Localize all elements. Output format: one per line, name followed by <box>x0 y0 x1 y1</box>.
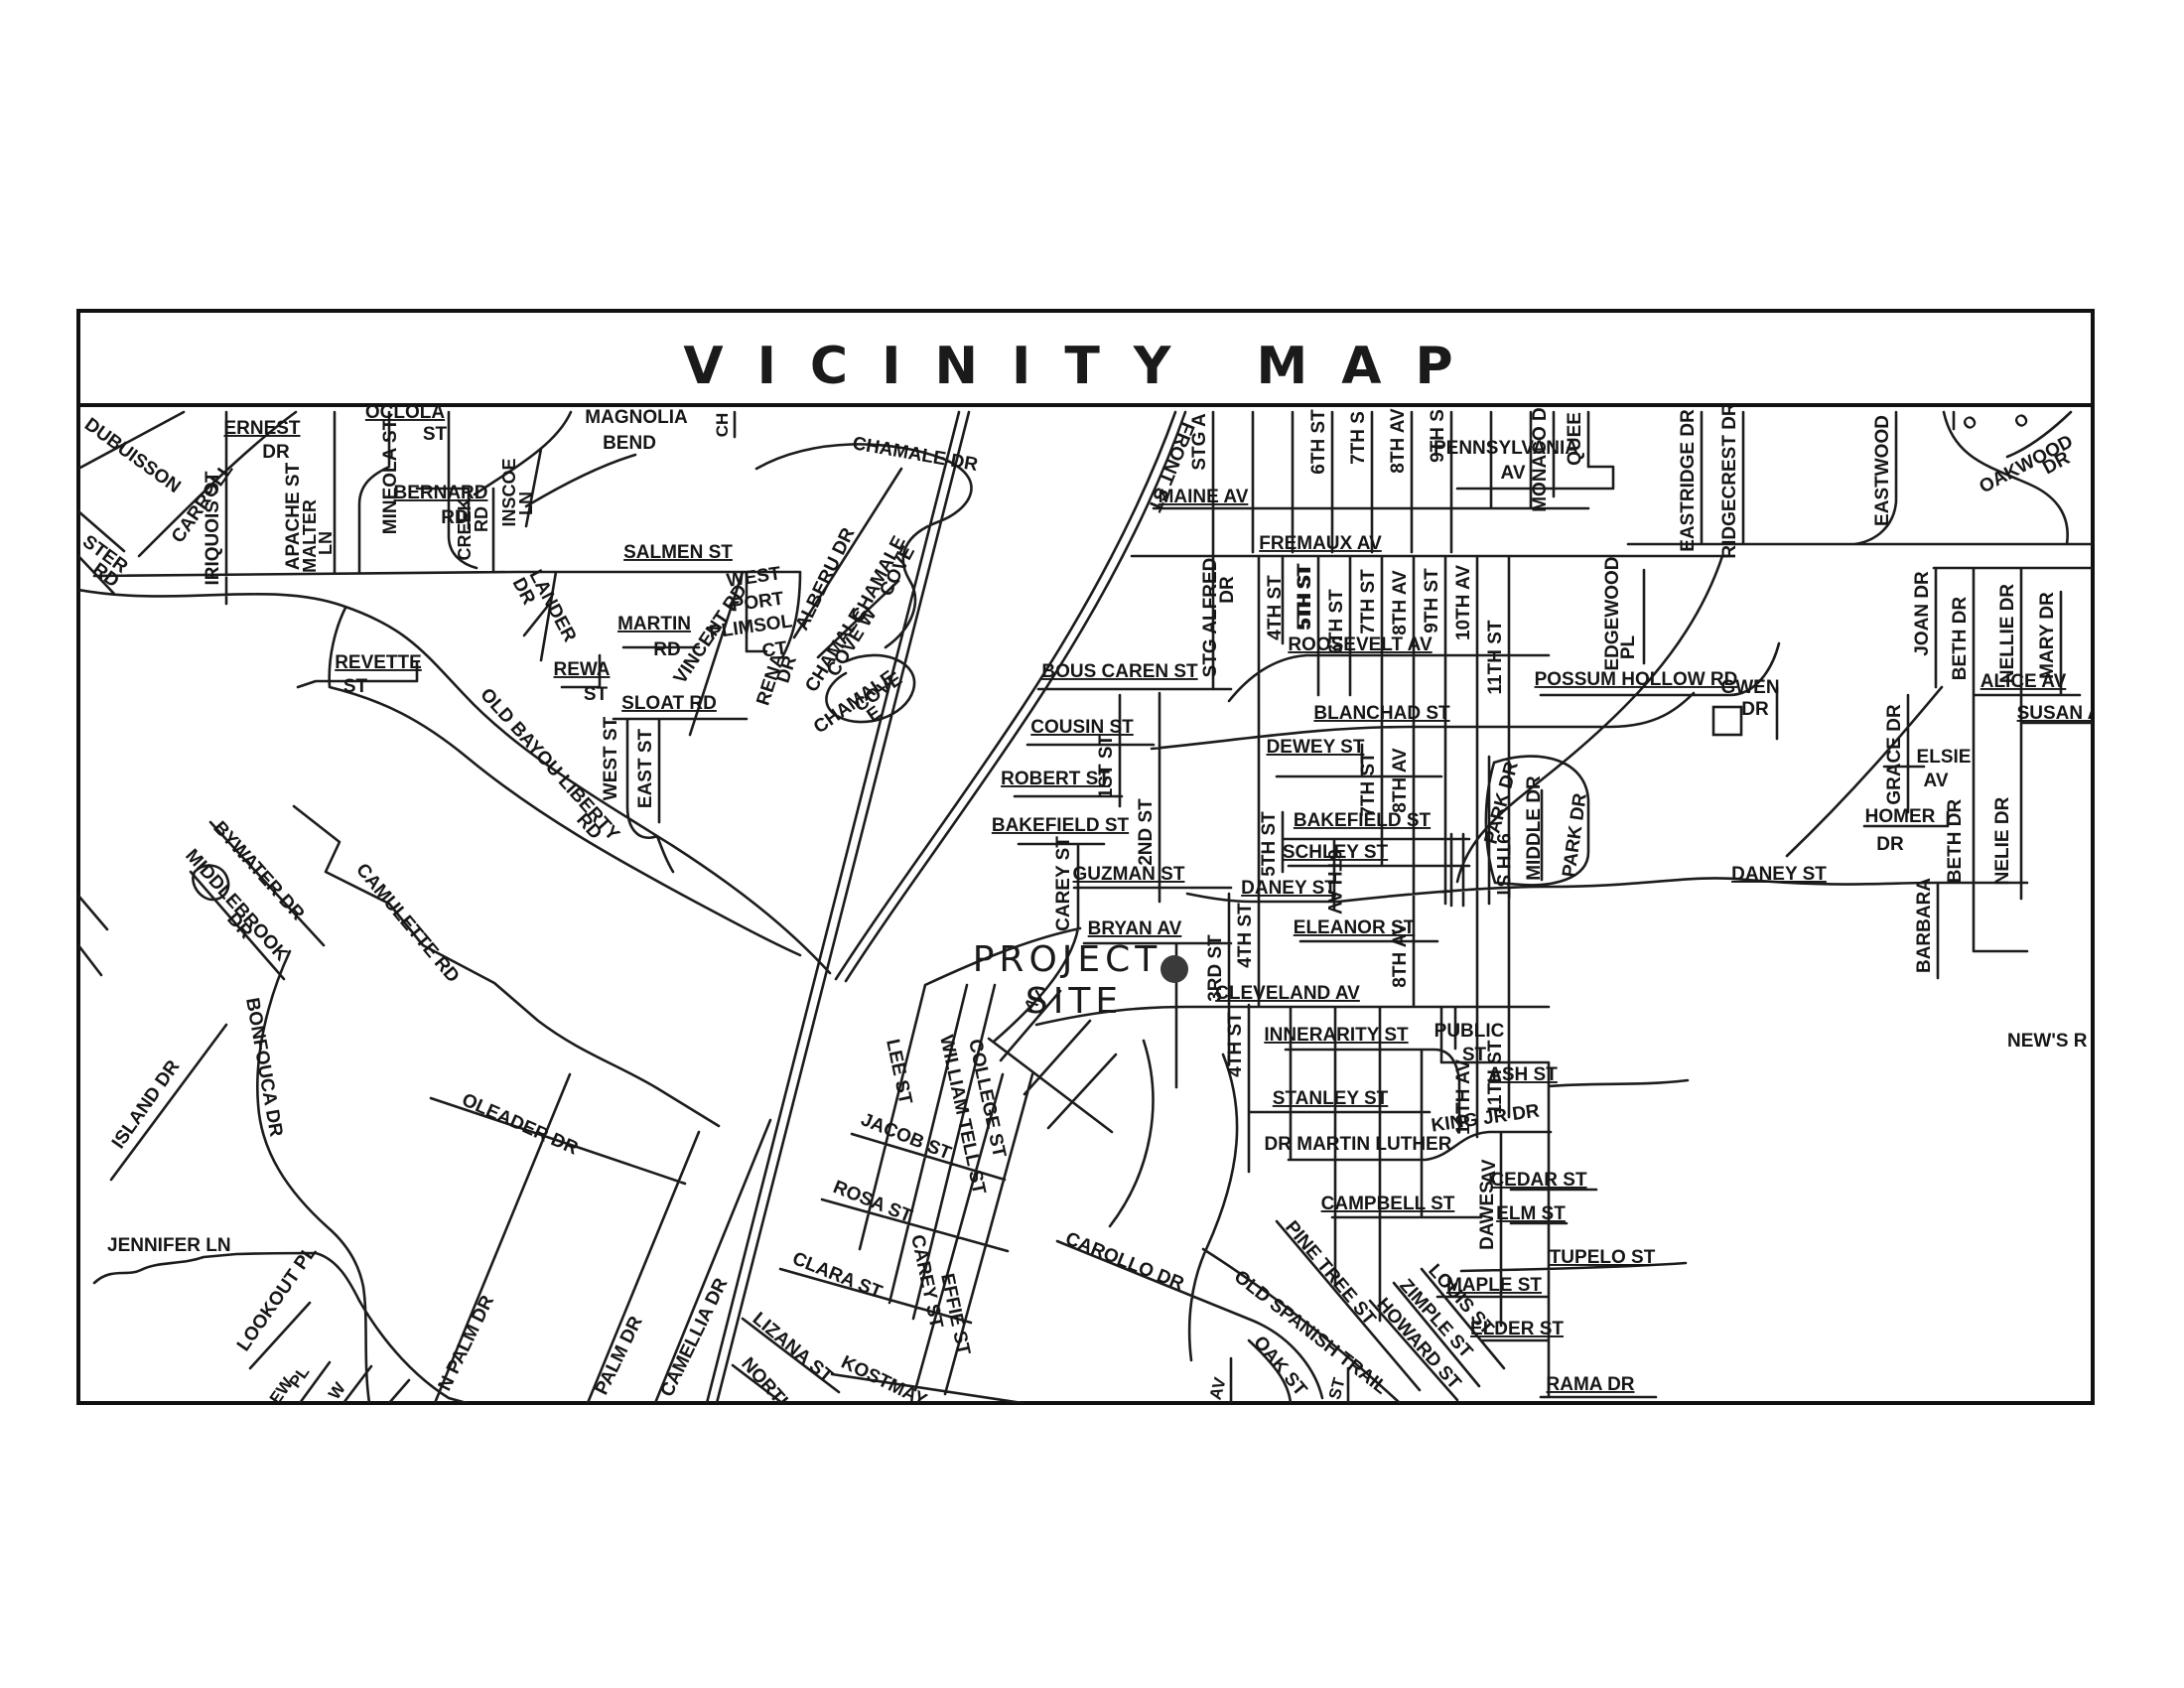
street-label: PENNSYLVANIA <box>1433 438 1578 459</box>
street-label: 4TH ST <box>1225 1012 1246 1077</box>
street-label: MAINE AV <box>1159 487 1249 507</box>
street-label: PUBLIC <box>1434 1021 1505 1042</box>
street-label: 8TH AV <box>1390 748 1411 813</box>
street-label: OLEADER DR <box>459 1089 582 1159</box>
street-label: CAREY ST <box>1053 836 1074 931</box>
street-label: RD <box>653 639 680 660</box>
street-label: 8TH AV <box>1390 922 1411 988</box>
map-canvas: VICINITY MAP PROJECT SITE DUBUISSONCARRO… <box>0 0 2184 1688</box>
vicinity-map-page: VICINITY MAP PROJECT SITE DUBUISSONCARRO… <box>0 0 2184 1688</box>
street-label: STG A <box>1189 413 1210 471</box>
street-label: DANEY ST <box>1731 864 1827 885</box>
street-label: INNERARITY ST <box>1264 1025 1409 1046</box>
street-label: STANLEY ST <box>1273 1088 1389 1109</box>
street-label: NELLIE DR <box>1997 584 2018 684</box>
street-label: 6TH ST <box>1308 409 1329 475</box>
street-label: ASH ST <box>1488 1064 1558 1085</box>
street-label: MAGNOLIA <box>585 407 688 428</box>
street-label: ERNEST <box>223 418 300 439</box>
street-label: ST <box>1325 1375 1349 1401</box>
street-label: DANEY ST <box>1241 878 1336 899</box>
street-label: BARBARA <box>1914 878 1935 973</box>
street-label: MONACO D <box>1530 407 1551 512</box>
street-label: ST <box>584 684 609 705</box>
street-label: N PALM DR <box>435 1292 499 1394</box>
street-label: DAWES <box>1477 1181 1498 1250</box>
street-label: COUSIN ST <box>1030 717 1134 738</box>
street-label: 8TH AV <box>1388 408 1409 474</box>
street-label: ST <box>343 676 368 697</box>
street-label: EASTRIDGE DR <box>1678 409 1699 552</box>
street-label: 11TH ST <box>1485 620 1506 694</box>
street-label: REVETTE <box>335 652 422 673</box>
project-site-marker <box>1160 955 1188 983</box>
street-label: MIDDLE DR <box>1524 775 1545 881</box>
street-label: NORTH <box>737 1353 797 1417</box>
street-label: RAMA DR <box>1546 1374 1634 1395</box>
street-label: ELM ST <box>1496 1203 1566 1224</box>
street-label: 2ND ST <box>1136 798 1157 866</box>
street-label: QUEE <box>1565 412 1585 466</box>
street-label: EASTWOOD <box>1872 415 1893 526</box>
street-label: CAMULETTE RD <box>351 860 463 987</box>
street-label: CLEVELAND AV <box>1215 983 1360 1004</box>
street-label: CAMPBELL ST <box>1321 1194 1455 1214</box>
street-label: OAK ST <box>1249 1333 1310 1401</box>
street-label: REWA <box>554 659 611 680</box>
street-label: MARTIN <box>617 614 691 634</box>
street-label: O <box>2010 409 2032 432</box>
street-label: 10TH AV <box>1453 565 1474 640</box>
street-label: DR MARTIN LUTHER <box>1265 1134 1452 1155</box>
street-label: GWEN <box>1720 677 1779 698</box>
street-label: DR <box>1741 699 1769 720</box>
project-site-label-line1: PROJECT <box>973 939 1162 980</box>
street-label: RD <box>472 506 491 532</box>
street-label: ELSIE <box>1917 747 1972 768</box>
street-label: AV <box>1206 1375 1230 1402</box>
street-label: CH <box>713 413 732 438</box>
street-label: BAKEFIELD ST <box>1294 810 1432 831</box>
street-label: OCLOLA <box>365 402 445 423</box>
street-label: TUPELO ST <box>1550 1247 1656 1268</box>
street-label: 5TH ST <box>1295 565 1315 631</box>
street-label: AV <box>1924 771 1949 791</box>
street-label: ROBERT ST <box>1001 769 1110 789</box>
street-label: HOMER <box>1865 806 1936 827</box>
street-label: 8TH AV <box>1390 570 1411 635</box>
street-label: PARK DR <box>1559 791 1591 879</box>
street-label: BEND <box>603 433 656 454</box>
street-label: POSSUM HOLLOW RD <box>1535 669 1738 690</box>
street-label: ROSA ST <box>830 1177 915 1227</box>
street-label: ST <box>423 424 448 445</box>
street-label: ISLAND DR <box>108 1056 185 1153</box>
street-label: GRACE DR <box>1884 704 1905 805</box>
street-label: ST <box>1462 1045 1487 1065</box>
street-label: NELIE DR <box>1992 796 2013 885</box>
street-label: DR <box>1217 576 1238 604</box>
street-label: 7TH ST <box>1358 752 1379 817</box>
street-label: CHAMALE DR <box>851 433 980 476</box>
street-label: SUSAN A <box>2017 703 2102 724</box>
street-label: BETH DR <box>1945 799 1966 884</box>
street-label: JACOB ST <box>858 1109 954 1165</box>
street-label: LN <box>316 531 336 555</box>
street-label: 4TH ST <box>1235 903 1256 968</box>
street-label: 1ST ST <box>1096 734 1117 798</box>
street-label: JOAN DR <box>1912 571 1933 656</box>
street-label: BLANCHAD ST <box>1313 703 1450 724</box>
street-label: 7TH ST <box>1358 569 1379 634</box>
street-label: FREMAUX AV <box>1259 533 1382 554</box>
street-label: JENNIFER LN <box>107 1235 231 1256</box>
building-footprint <box>1713 707 1741 735</box>
street-label: 5TH ST <box>1259 811 1280 877</box>
street-label: LN <box>516 492 536 515</box>
street-label: ROOSEVELT AV <box>1288 634 1433 655</box>
street-label: PL <box>1618 634 1639 659</box>
street-label: STG ALFRED <box>1200 558 1221 678</box>
street-label: DR <box>262 442 290 463</box>
street-label: EAST ST <box>635 728 656 808</box>
map-title: VICINITY MAP <box>683 337 1486 396</box>
street-label: DR <box>1876 834 1904 855</box>
street-label: MARY DR <box>2037 592 2058 679</box>
street-label: RIDGECREST DR <box>1719 402 1740 559</box>
street-label: ALICE AV <box>1980 671 2067 692</box>
street-label: WEST ST <box>601 716 621 800</box>
street-label: SLOAT RD <box>621 693 717 714</box>
street-label: BRYAN AV <box>1088 918 1182 939</box>
street-label: O <box>1959 411 1980 434</box>
street-label: CEDAR ST <box>1490 1170 1587 1191</box>
street-label: MINEOLA ST <box>380 418 401 534</box>
street-label: CAROLLO DR <box>1062 1228 1187 1295</box>
street-label: LANDER <box>525 566 581 645</box>
street-label: GUZMAN ST <box>1073 864 1185 885</box>
street-label: OLD SPANISH TRAIL <box>1230 1266 1392 1399</box>
street-label: SALMEN ST <box>623 542 733 563</box>
street-label: DEWEY ST <box>1267 737 1365 758</box>
street-label: NEW'S R <box>2007 1031 2088 1052</box>
street-label: AV <box>1501 463 1526 484</box>
street-label: BETH DR <box>1950 597 1971 681</box>
street-label: 9TH ST <box>1422 568 1442 633</box>
street-label: IRIQUOIS ST <box>203 471 223 585</box>
street-label: BAKEFIELD ST <box>992 815 1130 836</box>
street-label: BOUS CAREN ST <box>1041 661 1198 682</box>
street-label: 4TH ST <box>1265 575 1286 640</box>
street-label: 7TH S <box>1348 411 1369 465</box>
street-labels-layer: DUBUISSONCARROLLSTERRDIRIQUOIS STERNESTD… <box>78 402 2102 1418</box>
street-label: DUBUISSON <box>80 414 185 497</box>
street-label: BONFOUCA DR <box>241 996 286 1139</box>
